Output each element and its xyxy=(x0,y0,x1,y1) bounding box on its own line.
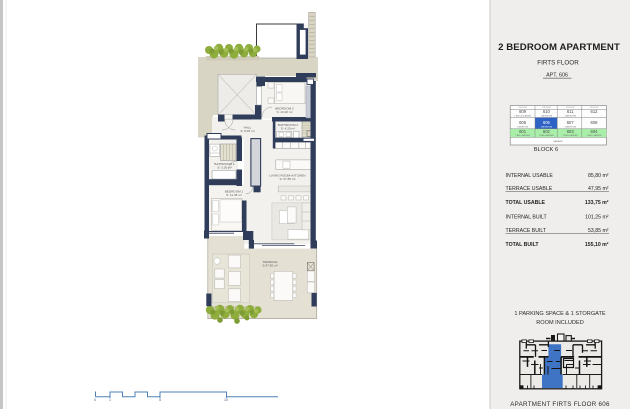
svg-text:605: 605 xyxy=(519,120,527,125)
svg-text:1 BEDROOM: 1 BEDROOM xyxy=(517,126,529,128)
svg-text:133,75 m²: 133,75 m² xyxy=(585,200,609,206)
svg-text:TOTAL BUILT: TOTAL BUILT xyxy=(506,242,540,248)
svg-text:BLOCK 6: BLOCK 6 xyxy=(534,147,559,153)
svg-text:1 PARKING SPACE & 1 STORGATE: 1 PARKING SPACE & 1 STORGATE xyxy=(514,311,606,317)
svg-text:5: 5 xyxy=(159,398,161,402)
svg-text:FIRTS FLOOR: FIRTS FLOOR xyxy=(537,60,579,67)
svg-text:604: 604 xyxy=(591,129,599,134)
svg-text:47,95 m²: 47,95 m² xyxy=(588,186,609,192)
svg-text:607: 607 xyxy=(567,120,575,125)
svg-text:1 BEDROOM: 1 BEDROOM xyxy=(541,116,553,118)
svg-text:0: 0 xyxy=(94,398,96,402)
svg-text:53,85 m²: 53,85 m² xyxy=(588,228,609,234)
svg-text:101,25 m²: 101,25 m² xyxy=(585,215,609,221)
svg-text:2 BEDROOM: 2 BEDROOM xyxy=(541,126,553,128)
svg-text:10: 10 xyxy=(224,398,228,402)
svg-text:ROOM INCLUDED: ROOM INCLUDED xyxy=(536,320,584,326)
svg-text:2 BED+GARDEN: 2 BED+GARDEN xyxy=(539,134,554,137)
svg-text:2 BED+GARDEN: 2 BED+GARDEN xyxy=(515,134,530,137)
svg-text:1 BED+SOLARIUM: 1 BED+SOLARIUM xyxy=(514,115,531,118)
svg-text:2 BEDROOM APARTMENT: 2 BEDROOM APARTMENT xyxy=(498,42,620,53)
svg-text:609: 609 xyxy=(519,109,527,114)
svg-text:602: 602 xyxy=(543,129,551,134)
svg-text:2 BED+GARDEN: 2 BED+GARDEN xyxy=(563,134,578,137)
svg-text:INTERNAL BUILT: INTERNAL BUILT xyxy=(506,215,548,221)
svg-text:611: 611 xyxy=(567,109,574,114)
svg-text:TERRACE USABLE: TERRACE USABLE xyxy=(506,186,553,192)
svg-text:155,10 m²: 155,10 m² xyxy=(585,242,609,248)
svg-text:1: 1 xyxy=(109,398,111,402)
svg-text:612: 612 xyxy=(591,109,599,114)
svg-text:TOTAL USABLE: TOTAL USABLE xyxy=(506,200,546,206)
svg-text:2 BED+GARDEN: 2 BED+GARDEN xyxy=(587,134,602,137)
svg-text:S: 11,35 m²: S: 11,35 m² xyxy=(226,193,242,197)
svg-text:85,80 m²: 85,80 m² xyxy=(588,173,609,179)
svg-text:603: 603 xyxy=(567,129,575,134)
svg-text:S: 3,30 m²: S: 3,30 m² xyxy=(217,165,231,169)
svg-text:1 BEDROOM: 1 BEDROOM xyxy=(565,126,577,128)
svg-text:APT. 606: APT. 606 xyxy=(546,73,568,79)
svg-text:1 BEDROOM: 1 BEDROOM xyxy=(565,116,577,118)
svg-text:APARTMENT FIRTS FLOOR 606: APARTMENT FIRTS FLOOR 606 xyxy=(510,401,610,408)
svg-text:610: 610 xyxy=(543,109,551,114)
svg-text:608: 608 xyxy=(591,120,599,125)
svg-text:S: 27,55 m²: S: 27,55 m² xyxy=(280,177,296,181)
svg-text:S: 10,20 m²: S: 10,20 m² xyxy=(277,110,293,114)
svg-text:GARAGE: GARAGE xyxy=(553,140,563,143)
svg-text:S:47,95 m²: S:47,95 m² xyxy=(262,264,277,268)
svg-text:601: 601 xyxy=(519,129,527,134)
svg-text:S: 4,20 m²: S: 4,20 m² xyxy=(281,127,295,131)
svg-text:TERRACE BUILT: TERRACE BUILT xyxy=(506,228,547,234)
svg-text:606: 606 xyxy=(543,120,551,125)
svg-text:S: 8,45 m²: S: 8,45 m² xyxy=(240,129,254,133)
svg-text:INTERNAL USABLE: INTERNAL USABLE xyxy=(506,173,554,179)
